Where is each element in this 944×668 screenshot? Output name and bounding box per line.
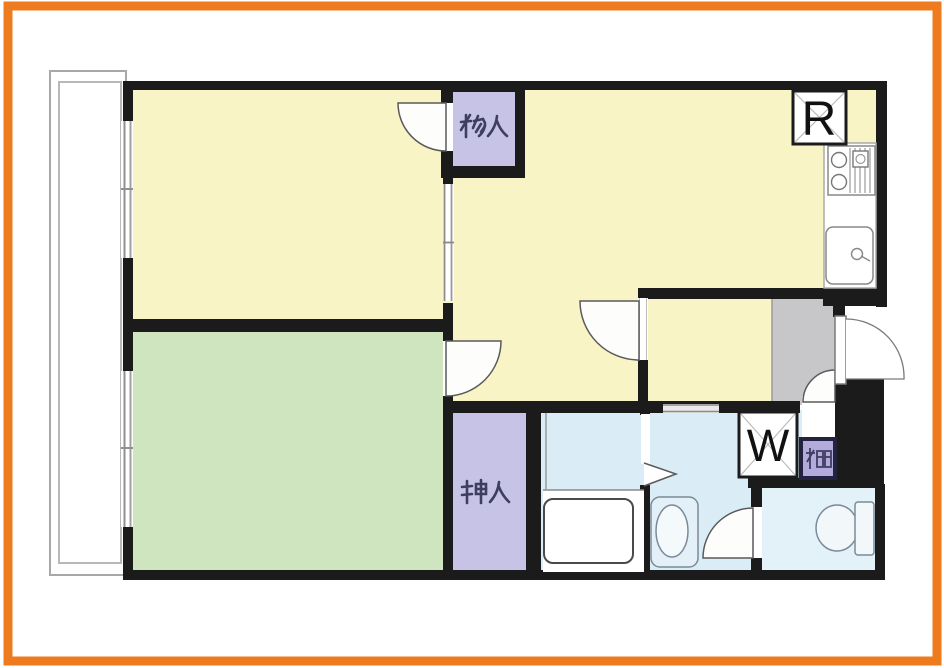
svg-text:R: R	[802, 93, 837, 146]
svg-text:W: W	[747, 420, 790, 471]
